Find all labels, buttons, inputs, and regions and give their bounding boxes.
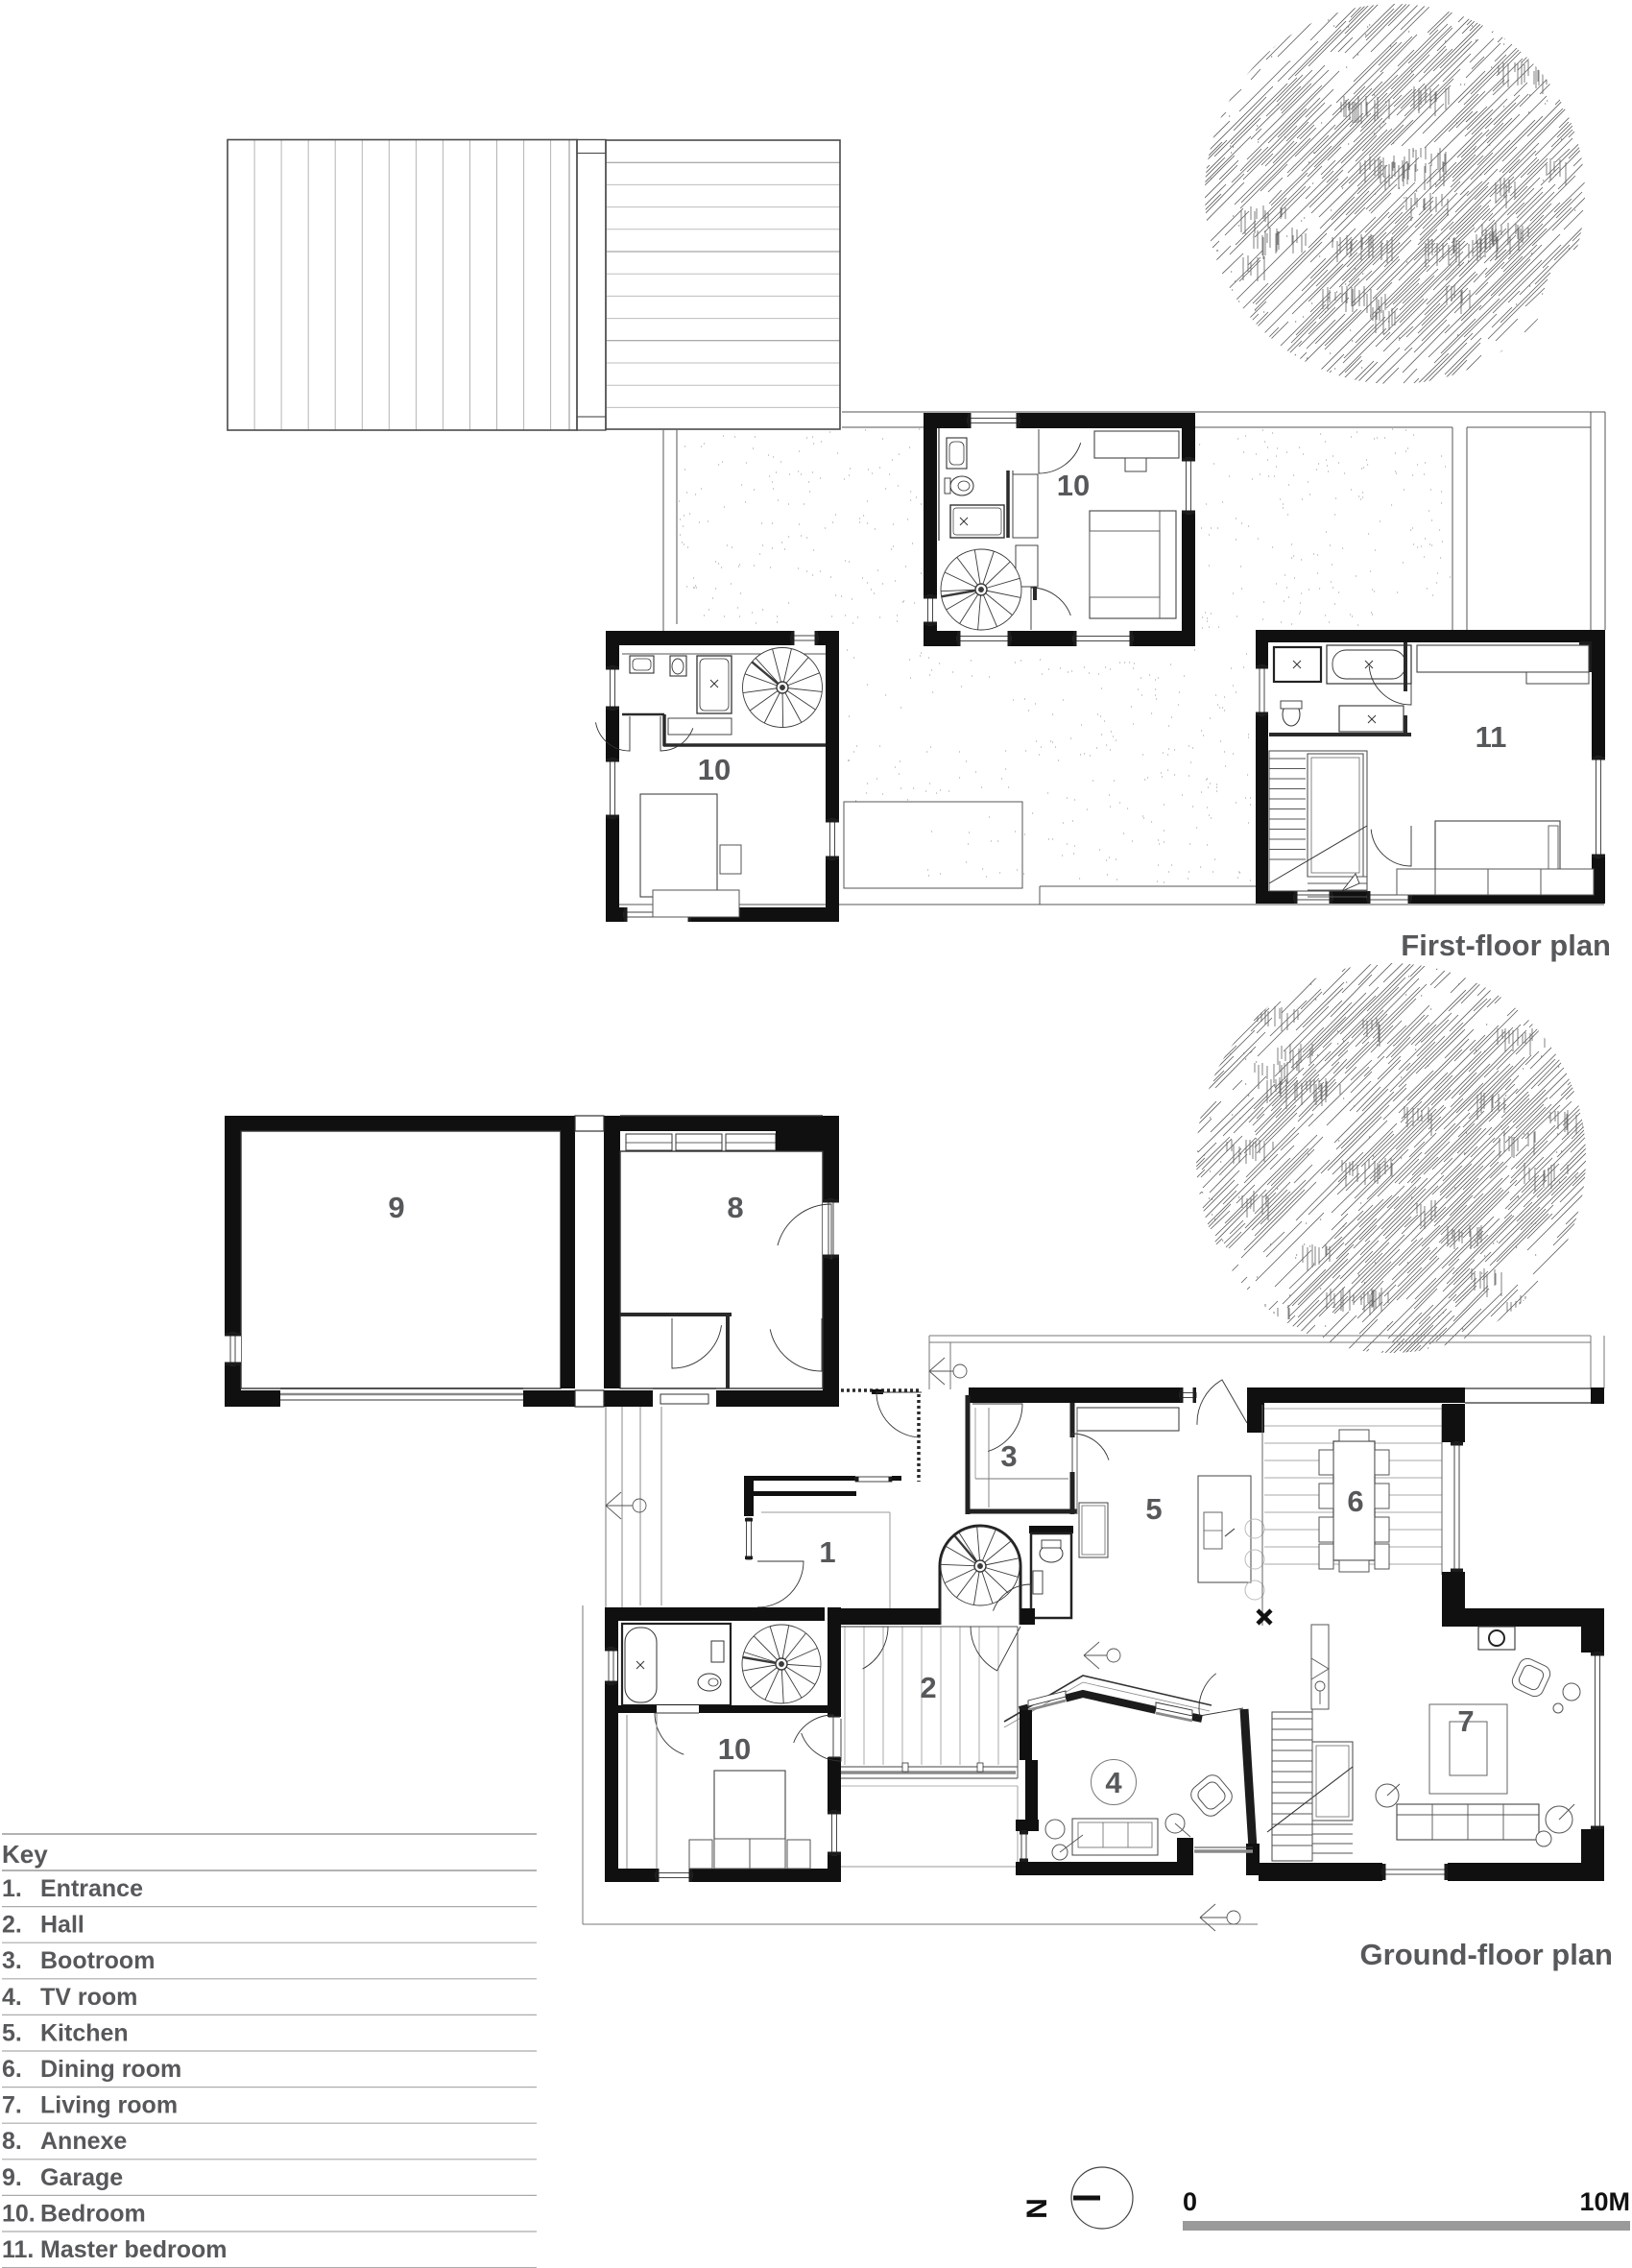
svg-text:7: 7	[1457, 1704, 1474, 1738]
svg-text:Bootroom: Bootroom	[40, 1947, 155, 1974]
svg-text:Ground-floor plan: Ground-floor plan	[1360, 1938, 1613, 1971]
svg-text:9: 9	[388, 1191, 404, 1224]
svg-text:Master bedroom: Master bedroom	[40, 2236, 227, 2263]
svg-text:TV room: TV room	[40, 1984, 137, 2011]
svg-text:1: 1	[819, 1535, 835, 1569]
svg-text:6: 6	[1347, 1484, 1363, 1518]
svg-text:Living room: Living room	[40, 2092, 178, 2119]
svg-text:Hall: Hall	[40, 1912, 84, 1939]
svg-text:11: 11	[1476, 720, 1507, 754]
svg-text:7.: 7.	[2, 2092, 22, 2119]
svg-text:Kitchen: Kitchen	[40, 2019, 129, 2046]
svg-text:Dining room: Dining room	[40, 2056, 181, 2083]
svg-text:3.: 3.	[2, 1947, 22, 1974]
svg-text:4.: 4.	[2, 1984, 22, 2011]
svg-text:Key: Key	[2, 1840, 48, 1869]
svg-text:5.: 5.	[2, 2019, 22, 2046]
svg-text:2: 2	[920, 1671, 936, 1704]
svg-text:11.: 11.	[2, 2236, 34, 2263]
svg-text:0: 0	[1183, 2187, 1197, 2216]
svg-text:8: 8	[727, 1191, 743, 1224]
svg-text:10M: 10M	[1579, 2187, 1630, 2216]
svg-text:Annexe: Annexe	[40, 2128, 127, 2155]
svg-text:8.: 8.	[2, 2128, 22, 2155]
svg-text:3: 3	[1000, 1439, 1017, 1473]
svg-text:5: 5	[1145, 1492, 1162, 1526]
svg-text:1.: 1.	[2, 1875, 22, 1902]
svg-text:10: 10	[698, 753, 731, 786]
svg-text:4: 4	[1105, 1766, 1122, 1799]
svg-text:10.: 10.	[2, 2200, 36, 2227]
svg-text:6.: 6.	[2, 2056, 22, 2083]
svg-text:2.: 2.	[2, 1912, 22, 1939]
svg-text:Garage: Garage	[40, 2164, 123, 2191]
svg-text:10: 10	[1057, 469, 1090, 502]
svg-text:9.: 9.	[2, 2164, 22, 2191]
svg-text:N: N	[1021, 2198, 1053, 2219]
svg-text:First-floor plan: First-floor plan	[1401, 929, 1611, 962]
svg-text:Bedroom: Bedroom	[40, 2200, 146, 2227]
svg-text:10: 10	[718, 1732, 751, 1766]
svg-text:Entrance: Entrance	[40, 1875, 143, 1902]
